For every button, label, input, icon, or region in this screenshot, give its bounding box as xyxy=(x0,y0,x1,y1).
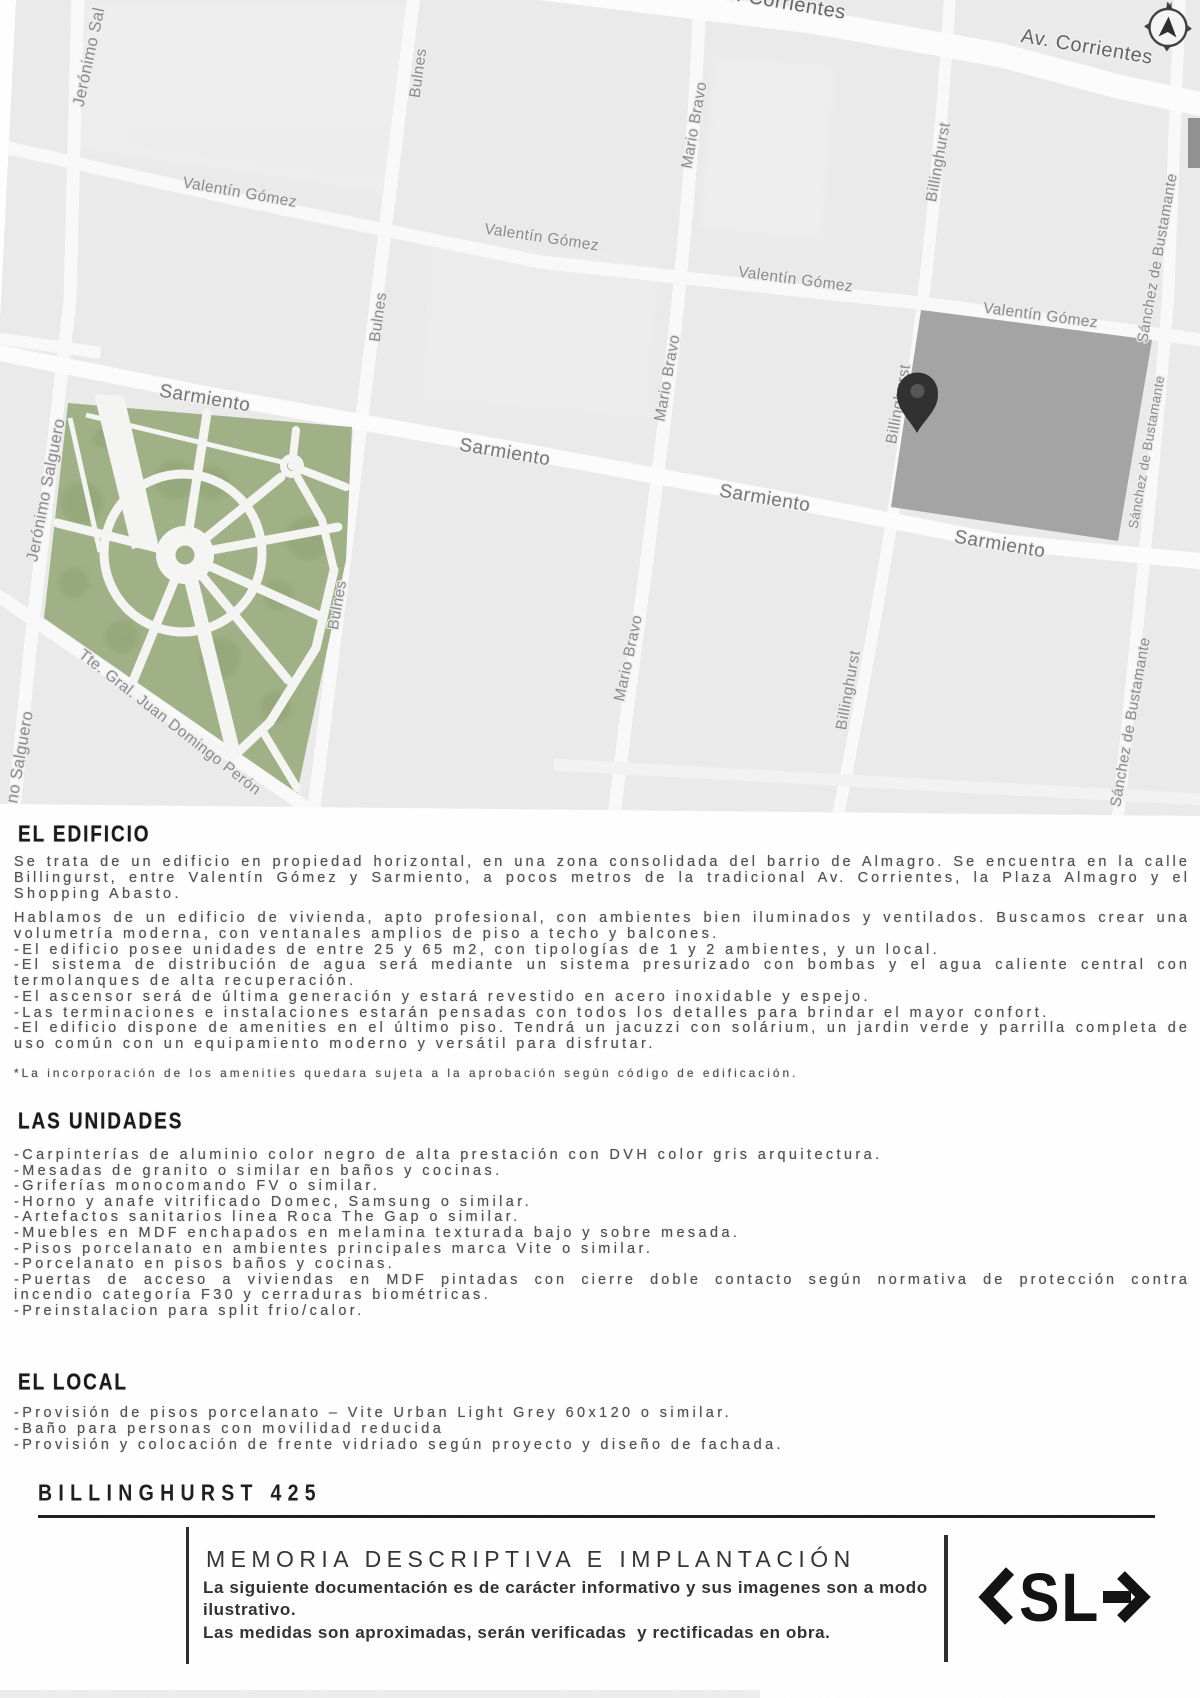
svg-text:N: N xyxy=(1166,1,1172,10)
svg-text:SL: SL xyxy=(1019,1558,1100,1635)
